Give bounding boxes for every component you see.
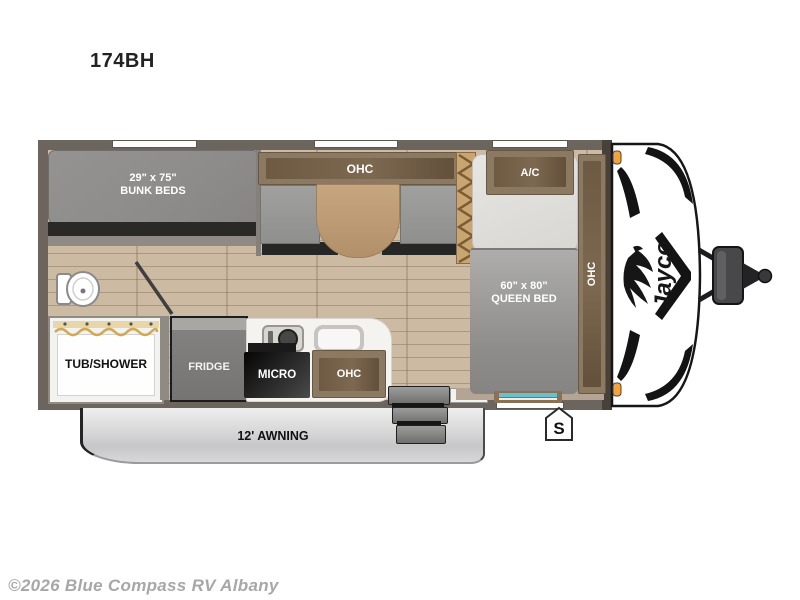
marker-light-bottom [613,383,621,396]
marker-light-top [613,151,621,164]
entry-step-3 [396,425,446,444]
propane-tank-sheen [717,251,726,300]
bed-foot-window-sill [499,398,557,400]
jayco-logo-text: Jayco [650,241,677,309]
window-bed-top [493,141,567,147]
toilet-icon [53,268,103,310]
front-cap: Jayco [600,135,800,415]
s-marker-letter: S [553,419,564,438]
dinette-seat-left [260,185,320,244]
floorplan-page: 174BH 29" x 75" BUNK BEDS [0,0,800,600]
bed-foot-window-glass [499,393,557,397]
tub-shower: TUB/SHOWER [48,316,164,404]
model-number-title: 174BH [90,50,155,73]
dealer-watermark: ©2026 Blue Compass RV Albany [8,576,279,596]
queen-bed-label: 60" x 80" QUEEN BED [470,278,578,308]
dinette-ohc-cabinet: OHC [258,152,462,185]
ac-cabinet: A/C [486,150,574,195]
queen-bed: 60" x 80" QUEEN BED [470,248,578,394]
sink-icon [314,325,364,353]
awning-label: 12' AWNING [203,428,343,444]
bunk-bed-label: 29" x 75" BUNK BEDS [48,168,258,202]
shower-curtain [53,321,159,337]
microwave: MICRO [244,352,310,398]
stove-front-trim [248,343,296,352]
fridge-label: FRIDGE [172,360,246,374]
bunk-bed-lower-edge [48,222,258,236]
s-marker: S [544,406,574,442]
dinette-table [316,184,400,258]
kitchen-ohc-label: OHC [312,367,386,381]
ac-label: A/C [486,166,574,180]
hitch-ball [759,270,772,283]
front-ohc-label: OHC [585,238,599,310]
fridge: FRIDGE [170,316,248,402]
tub-shower-label: TUB/SHOWER [50,356,162,372]
bunk-bed-base [48,236,258,246]
window-rear-top [113,141,196,147]
wall-rear [38,140,48,410]
bed-foot-window-frame [494,391,562,403]
bathroom-door-swing [130,258,180,318]
microwave-label: MICRO [244,368,310,382]
wall-bath-partition [160,316,169,400]
kitchen-ohc-cabinet: OHC [312,350,386,398]
dinette-ohc-label: OHC [258,162,462,176]
dinette-seat-right [400,185,460,244]
window-dinette-top [315,141,397,147]
